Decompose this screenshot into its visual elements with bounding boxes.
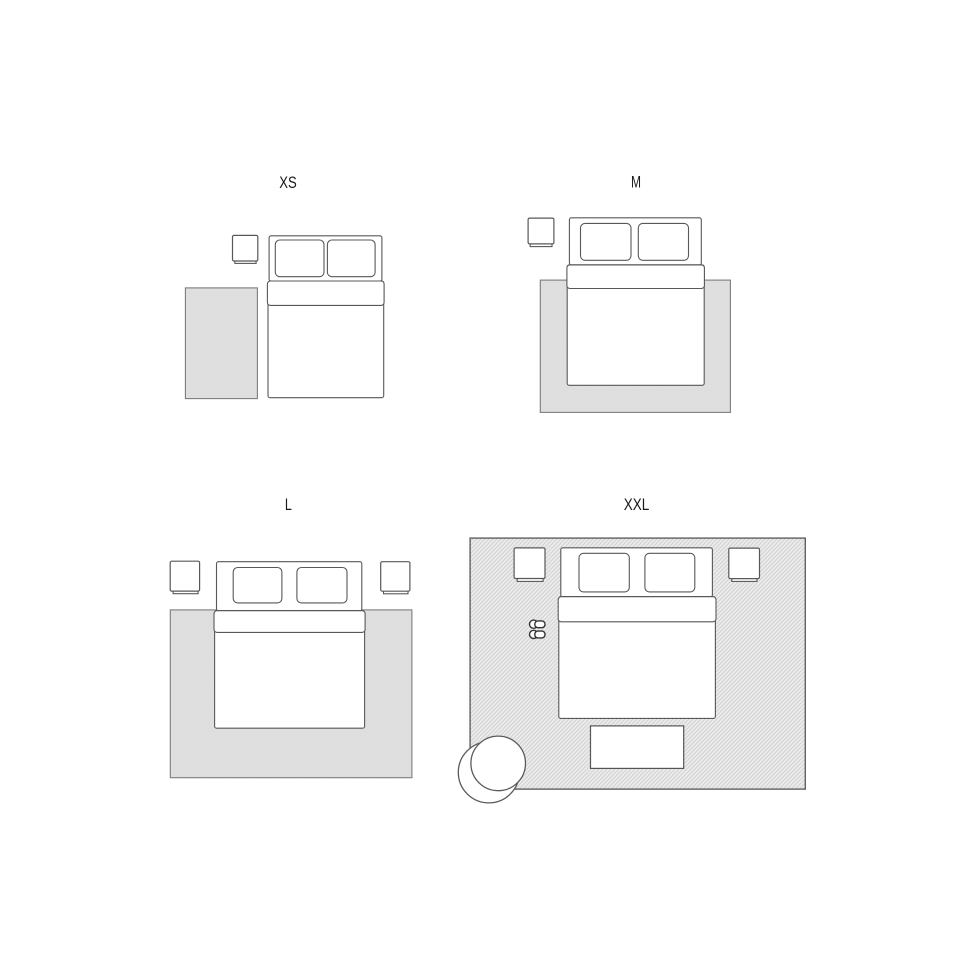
svg-text:L: L bbox=[285, 496, 292, 514]
svg-text:M: M bbox=[631, 173, 641, 191]
svg-text:XS: XS bbox=[279, 174, 297, 192]
svg-text:XXL: XXL bbox=[624, 496, 650, 514]
